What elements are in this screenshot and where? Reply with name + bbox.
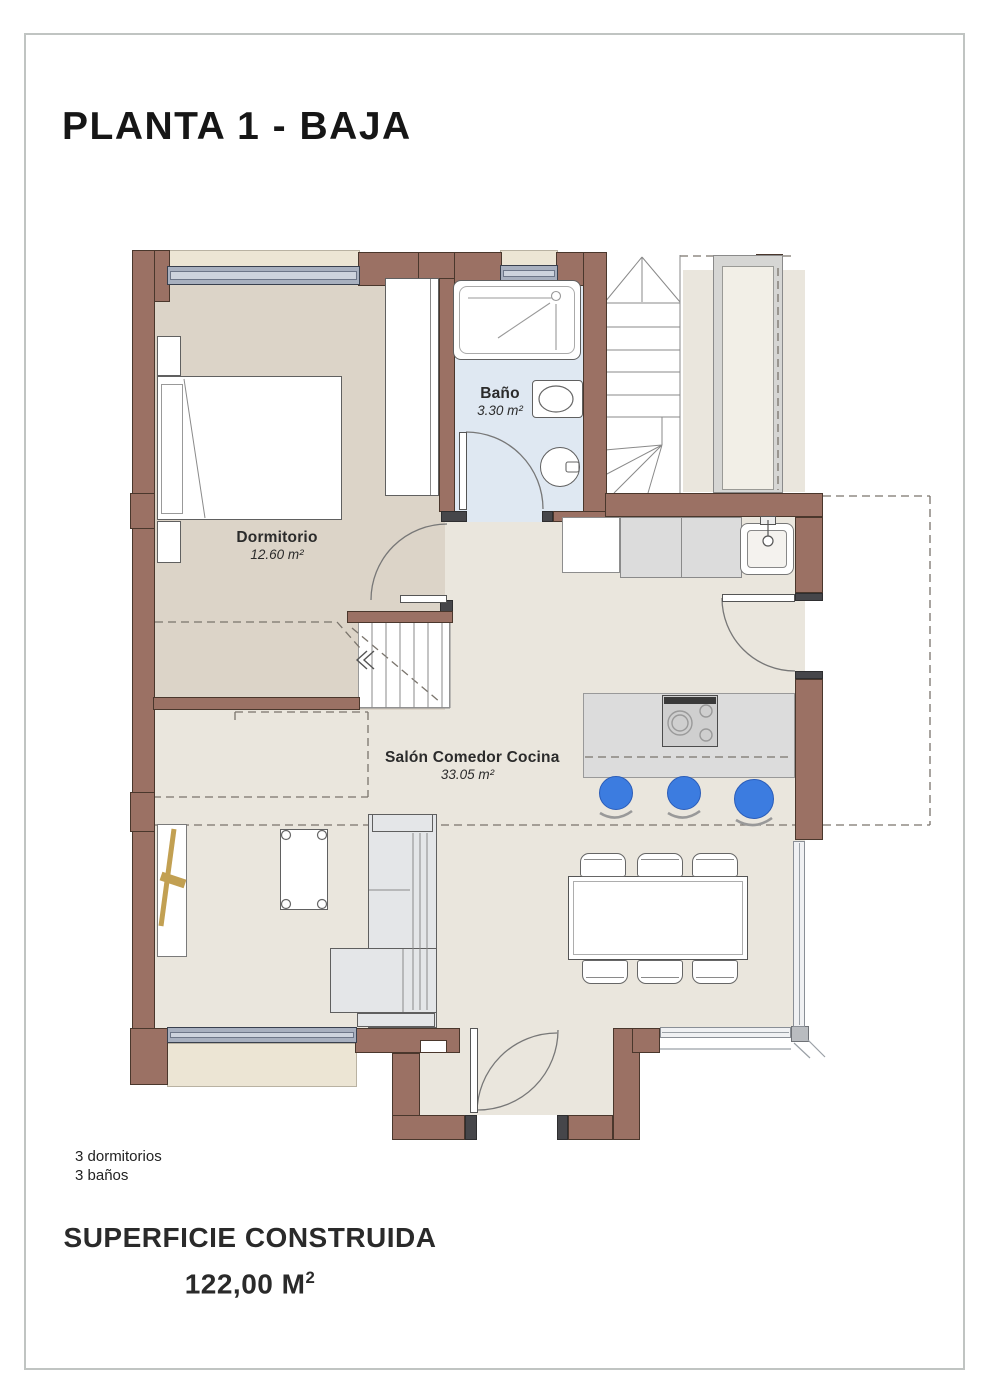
door-jamb-entrance-right xyxy=(557,1115,568,1140)
counter-divider xyxy=(681,518,682,577)
wall-kitchen-east-upper xyxy=(795,517,823,593)
built-area-label: SUPERFICIE CONSTRUIDA xyxy=(60,1218,440,1258)
window-sill-living xyxy=(167,1043,357,1087)
wall-west-pier-1 xyxy=(130,493,155,529)
built-area-value: 122,00 M2 xyxy=(60,1258,440,1304)
wall-bedroom-south xyxy=(153,697,360,710)
bar-stool xyxy=(667,776,701,810)
sofa-chaise xyxy=(330,948,437,1013)
kitchen-counter xyxy=(620,517,742,578)
door-jamb-bathroom-right xyxy=(542,511,553,522)
shower-tray-inner xyxy=(459,286,575,354)
bed-pillow xyxy=(161,384,183,514)
summary-block: 3 dormitorios 3 baños xyxy=(75,1147,162,1185)
wall-stair-top xyxy=(347,611,453,623)
wall-pillar-bottom-left xyxy=(130,1028,168,1085)
dining-chair xyxy=(692,960,738,984)
wall-entrance-south-right xyxy=(568,1115,613,1140)
window-dining-south xyxy=(660,1027,791,1038)
floor-staircase xyxy=(605,255,680,493)
door-jamb-kitchen-top xyxy=(795,593,823,601)
dining-chair xyxy=(637,853,683,877)
dining-table-top xyxy=(573,881,743,955)
summary-bathrooms: 3 baños xyxy=(75,1166,162,1185)
room-area-bedroom: 12.60 m² xyxy=(197,547,357,562)
dining-chair xyxy=(580,853,626,877)
dining-chair xyxy=(582,960,628,984)
room-label-bedroom: Dormitorio 12.60 m² xyxy=(197,529,357,562)
floor-plan-page: PLANTA 1 - BAJA xyxy=(0,0,989,1400)
summary-bedrooms: 3 dormitorios xyxy=(75,1147,162,1166)
nightstand-top xyxy=(157,336,181,376)
wall-west-pier-2 xyxy=(130,792,155,832)
door-jamb-bathroom-left xyxy=(441,511,467,522)
dining-table xyxy=(568,876,748,960)
room-name-bathroom: Baño xyxy=(450,385,550,403)
wall-notch xyxy=(420,1040,447,1053)
room-area-bathroom: 3.30 m² xyxy=(450,403,550,418)
kitchen-faucet xyxy=(760,516,776,525)
cooktop-control-strip xyxy=(664,697,716,704)
dining-chair xyxy=(692,853,738,877)
coffee-table xyxy=(280,829,328,910)
plan-title: PLANTA 1 - BAJA xyxy=(62,105,412,149)
wall-kitchen-north xyxy=(605,493,823,517)
bar-stool xyxy=(734,779,774,819)
sofa-back-cushion xyxy=(372,814,433,832)
bar-stool xyxy=(599,776,633,810)
window-living-south xyxy=(167,1027,357,1043)
kitchen-cabinet xyxy=(562,517,620,573)
built-area-block: SUPERFICIE CONSTRUIDA 122,00 M2 xyxy=(60,1218,440,1304)
wall-entrance-south-left xyxy=(392,1115,465,1140)
room-label-living: Salón Comedor Cocina 33.05 m² xyxy=(385,749,550,782)
wardrobe xyxy=(385,278,439,496)
bed xyxy=(157,376,342,520)
nightstand-bottom xyxy=(157,521,181,563)
room-name-living: Salón Comedor Cocina xyxy=(385,749,550,767)
window-bedroom xyxy=(167,266,360,285)
bedroom-door-leaf xyxy=(400,595,447,603)
room-name-bedroom: Dormitorio xyxy=(197,529,357,547)
room-area-living: 33.05 m² xyxy=(385,767,550,782)
kitchen-door-leaf xyxy=(722,594,795,602)
window-corner-post xyxy=(791,1026,809,1042)
wardrobe-divider xyxy=(430,279,431,495)
window-dining-east xyxy=(793,841,805,1027)
dining-chair xyxy=(637,960,683,984)
entrance-door-leaf xyxy=(470,1028,478,1113)
door-jamb-kitchen-bottom xyxy=(795,671,823,679)
kitchen-sink-bowl xyxy=(747,530,787,568)
door-jamb-entrance-left xyxy=(465,1115,477,1140)
side-terrace-inner xyxy=(722,266,774,490)
room-label-bathroom: Baño 3.30 m² xyxy=(450,385,550,418)
toilet xyxy=(540,447,580,487)
wall-west xyxy=(132,250,155,1053)
wall-block-southeast xyxy=(632,1028,660,1053)
sofa-front-cushion xyxy=(357,1013,435,1027)
tv-unit xyxy=(157,824,187,957)
floor-basement-stairs xyxy=(358,622,450,708)
bathroom-door-leaf xyxy=(459,432,467,510)
wall-kitchen-east-lower xyxy=(795,679,823,840)
wall-bathroom-east xyxy=(583,252,607,520)
